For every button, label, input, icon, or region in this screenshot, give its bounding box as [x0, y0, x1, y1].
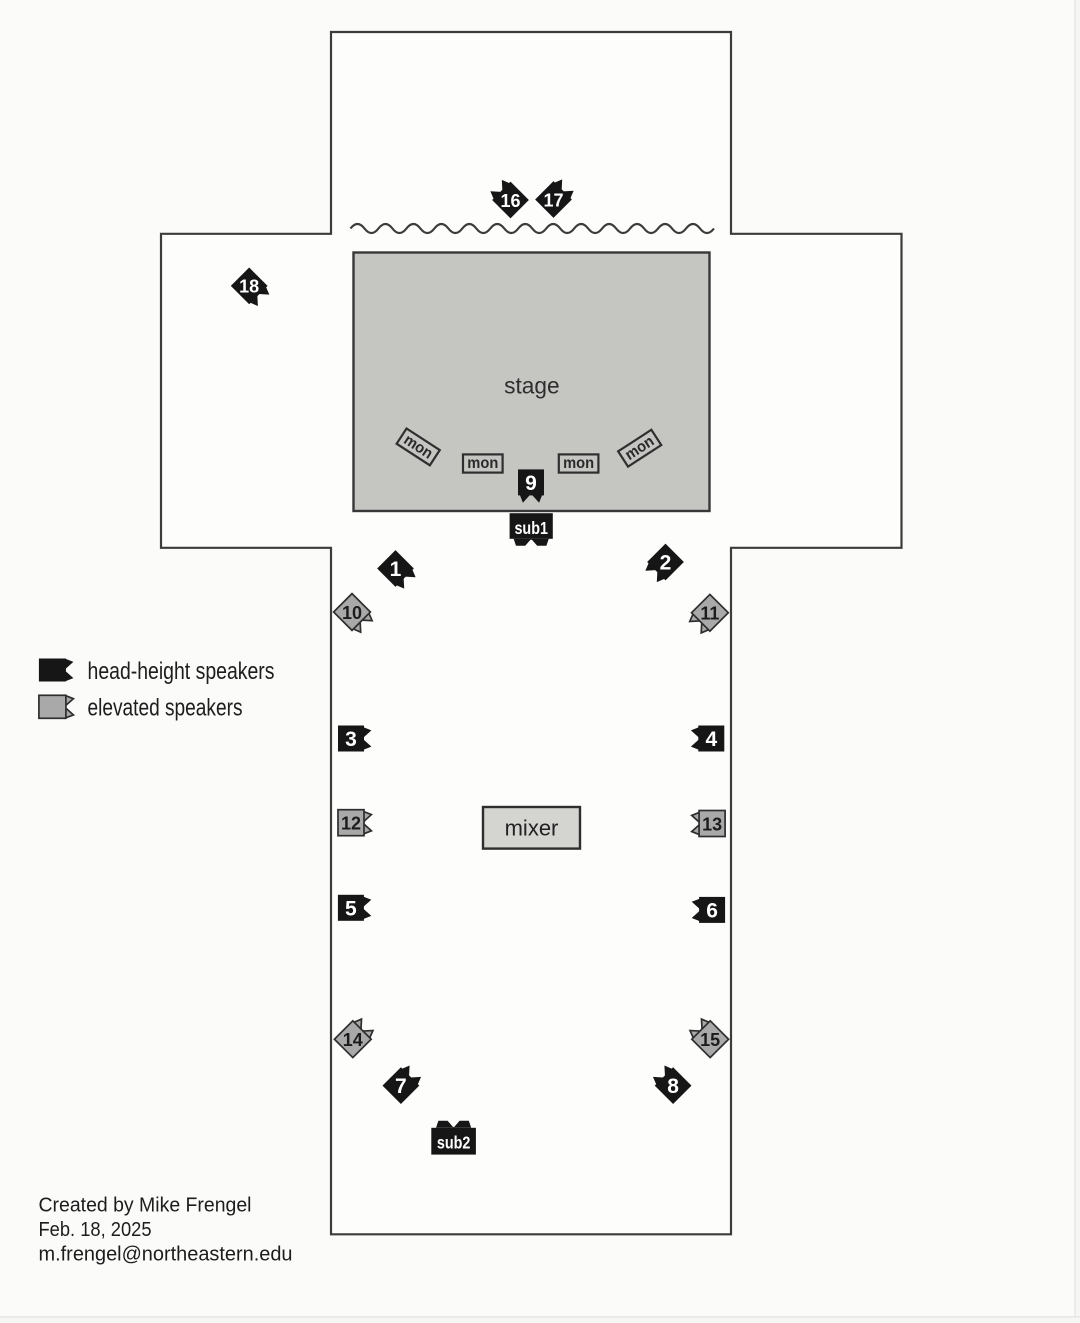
svg-text:sub1: sub1 — [514, 518, 548, 538]
svg-text:16: 16 — [500, 191, 520, 211]
svg-text:7: 7 — [395, 1075, 407, 1098]
svg-text:15: 15 — [700, 1030, 720, 1050]
svg-text:1: 1 — [390, 558, 402, 581]
svg-text:mixer: mixer — [505, 815, 559, 840]
svg-text:13: 13 — [702, 814, 722, 834]
svg-text:6: 6 — [706, 899, 718, 922]
svg-text:4: 4 — [705, 728, 717, 751]
svg-text:9: 9 — [525, 472, 537, 495]
svg-text:mon: mon — [563, 455, 594, 472]
svg-text:14: 14 — [343, 1030, 363, 1050]
svg-text:Feb. 18, 2025: Feb. 18, 2025 — [39, 1218, 152, 1241]
svg-text:5: 5 — [345, 897, 357, 920]
svg-text:mon: mon — [467, 455, 498, 472]
svg-text:12: 12 — [341, 814, 361, 834]
svg-text:head-height speakers: head-height speakers — [88, 658, 275, 685]
svg-text:m.frengel@northeastern.edu: m.frengel@northeastern.edu — [39, 1243, 293, 1266]
svg-text:sub2: sub2 — [437, 1133, 471, 1153]
svg-text:11: 11 — [700, 604, 719, 624]
svg-text:stage: stage — [504, 373, 560, 399]
svg-text:17: 17 — [543, 190, 563, 210]
svg-text:3: 3 — [345, 728, 357, 751]
svg-text:18: 18 — [239, 277, 259, 297]
svg-text:10: 10 — [342, 603, 362, 623]
svg-text:2: 2 — [660, 552, 672, 575]
svg-text:8: 8 — [667, 1075, 679, 1098]
svg-text:elevated speakers: elevated speakers — [88, 695, 243, 722]
svg-text:Created by Mike Frengel: Created by Mike Frengel — [39, 1194, 252, 1217]
